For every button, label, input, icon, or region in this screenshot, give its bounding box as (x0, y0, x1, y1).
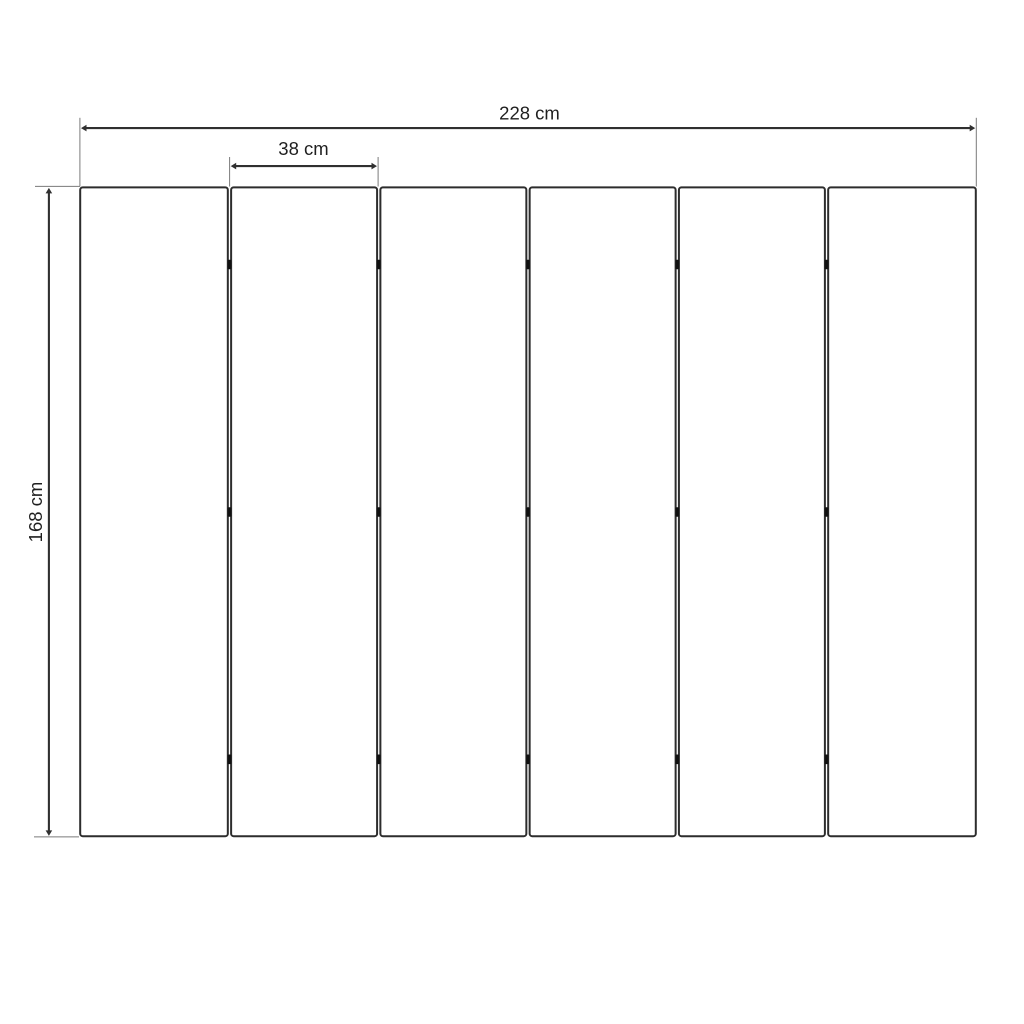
svg-text:38 cm: 38 cm (278, 138, 328, 159)
svg-text:168 cm: 168 cm (25, 482, 46, 543)
svg-text:228 cm: 228 cm (499, 103, 560, 124)
